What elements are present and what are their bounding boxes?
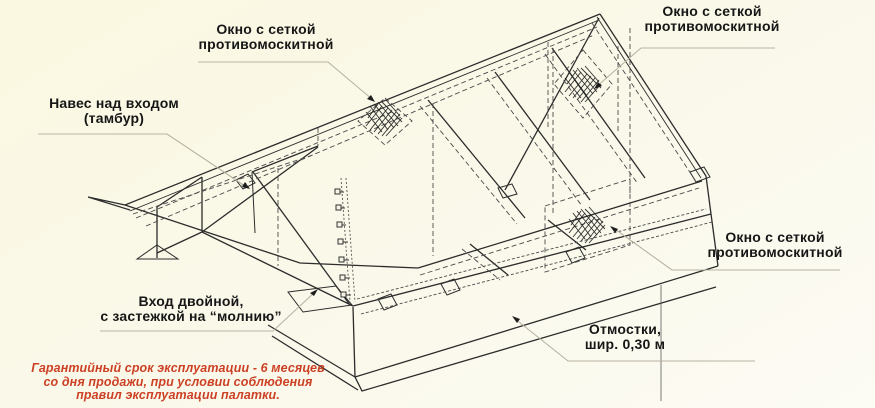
label-line: противомоскитной <box>690 245 860 260</box>
mosquito-net-hatches <box>366 66 605 243</box>
label-window-top-left: Окно с сеткой противомоскитной <box>180 22 352 52</box>
label-line: Окно с сеткой <box>628 4 796 19</box>
warranty-line: Гарантийный срок эксплуатации - 6 месяце… <box>28 362 328 376</box>
tie-down-flaps <box>236 167 710 310</box>
tent-structure-dashed <box>133 23 712 314</box>
label-line: Окно с сеткой <box>690 230 860 245</box>
label-line: Окно с сеткой <box>180 22 352 37</box>
warranty-note: Гарантийный срок эксплуатации - 6 месяце… <box>28 362 328 403</box>
canopy-tail <box>88 197 130 210</box>
leader-canopy <box>38 134 248 188</box>
label-window-top-right: Окно с сеткой противомоскитной <box>628 4 796 34</box>
label-line: Вход двойной, <box>85 294 297 309</box>
warranty-line: со дня продажи, при условии соблюдения <box>28 376 328 390</box>
label-window-right: Окно с сеткой противомоскитной <box>690 230 860 260</box>
right-wall-edge <box>706 176 711 214</box>
label-line: противомоскитной <box>628 19 796 34</box>
entrance-zipper <box>335 178 355 302</box>
tent-diagram-canvas: Окно с сеткой противомоскитной Окно с се… <box>0 0 875 408</box>
label-line: (тамбур) <box>30 111 198 126</box>
label-line: противомоскитной <box>180 37 352 52</box>
tent-line-drawing <box>0 0 875 408</box>
label-line: Навес над входом <box>30 96 198 111</box>
label-line: Отмостки, <box>540 322 710 337</box>
label-canopy: Навес над входом (тамбур) <box>30 96 198 126</box>
label-line: шир. 0,30 м <box>540 337 710 352</box>
warranty-line: правил эксплуатации палатки. <box>28 389 328 403</box>
right-gable-edge <box>600 14 706 176</box>
zipper-toggles <box>335 189 351 297</box>
label-line: с застежкой на “молнию” <box>85 309 297 324</box>
leader-window-tr <box>596 48 775 87</box>
leader-window-tl <box>198 62 373 100</box>
label-entrance: Вход двойной, с застежкой на “молнию” <box>85 294 297 324</box>
side-eave <box>418 181 702 268</box>
label-apron: Отмостки, шир. 0,30 м <box>540 322 710 352</box>
